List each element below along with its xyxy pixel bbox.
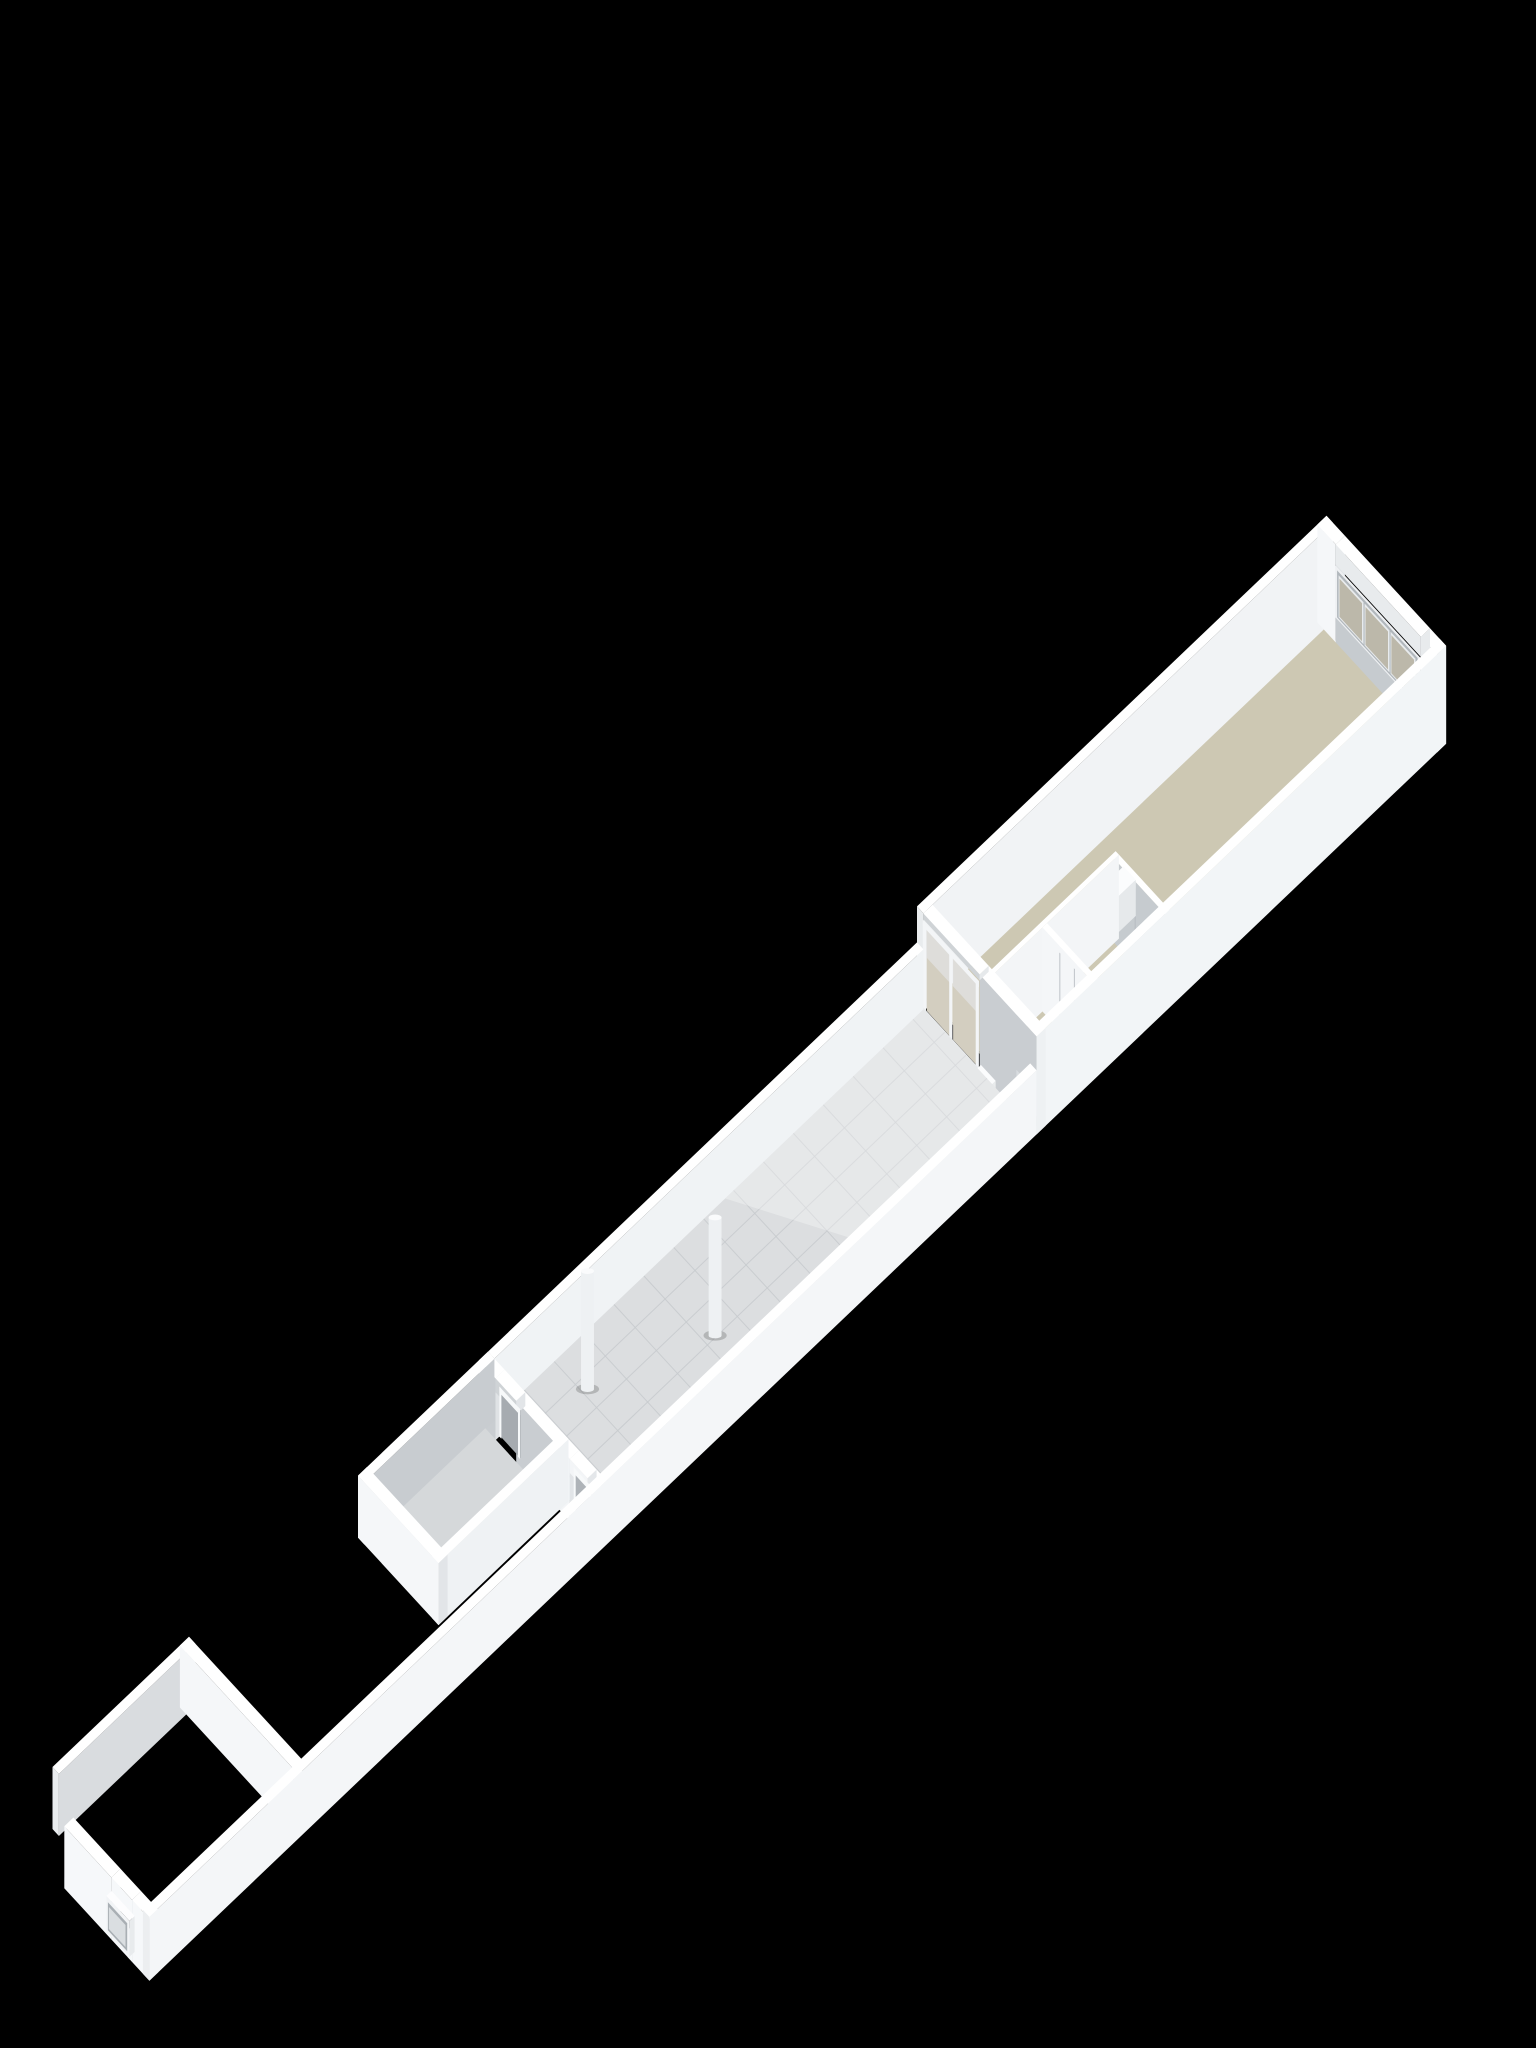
floorplan-render	[0, 0, 1536, 2048]
pergola-post-2-top	[709, 1215, 722, 1221]
long-right-wall-top	[143, 1063, 1037, 1916]
pergola-post-1-body	[581, 1271, 594, 1392]
slider-frame-center-quad	[949, 949, 952, 1045]
pergola-post-1-top	[581, 1268, 594, 1274]
back-window-frame-face-se	[129, 1916, 134, 1957]
front-wall-left-jamb-face-sw	[1317, 525, 1335, 643]
long-right-wall-face-sw	[143, 1910, 150, 1981]
slider-frame-right-quad	[976, 978, 979, 1074]
long-right-wall-face-se	[149, 1070, 1036, 1980]
shed-back-wall-face-se	[439, 1554, 448, 1625]
floorplan-svg	[0, 0, 1536, 2048]
garden-left-wall-face-se	[59, 1644, 196, 1836]
slider-frame-right	[976, 978, 979, 1074]
long-right-wall	[143, 1063, 1037, 1980]
rear-wall-solid-face-se	[1037, 1028, 1046, 1135]
garden-left-wall-face-sw	[53, 1767, 59, 1836]
slider-frame-center	[949, 949, 952, 1045]
garden-left-wall	[53, 1637, 196, 1836]
pergola-post-2-body	[709, 1217, 722, 1338]
